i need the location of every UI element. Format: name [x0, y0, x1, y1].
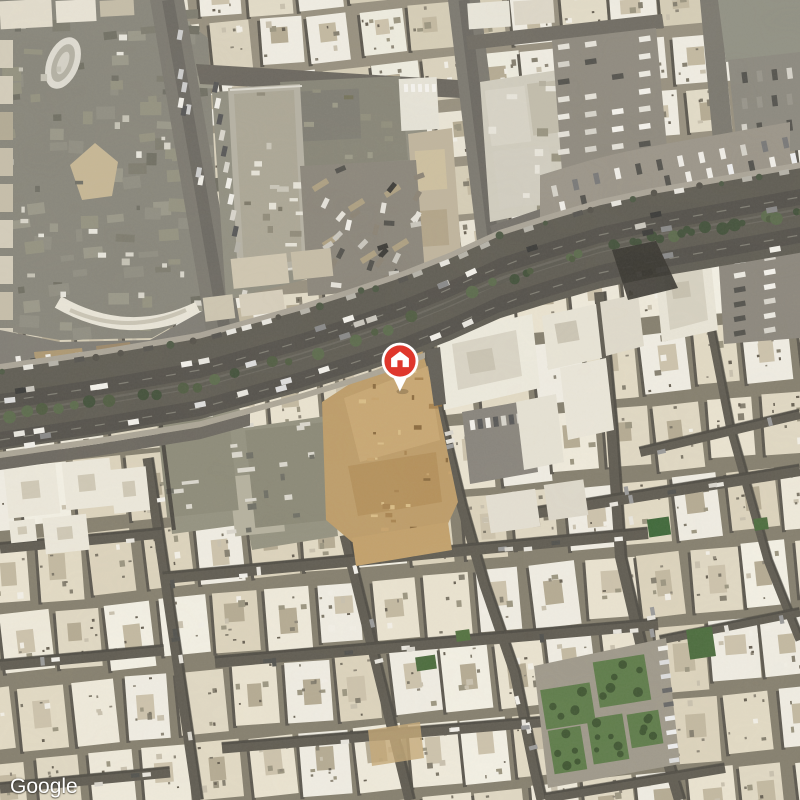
svg-text:Google: Google — [10, 775, 78, 798]
